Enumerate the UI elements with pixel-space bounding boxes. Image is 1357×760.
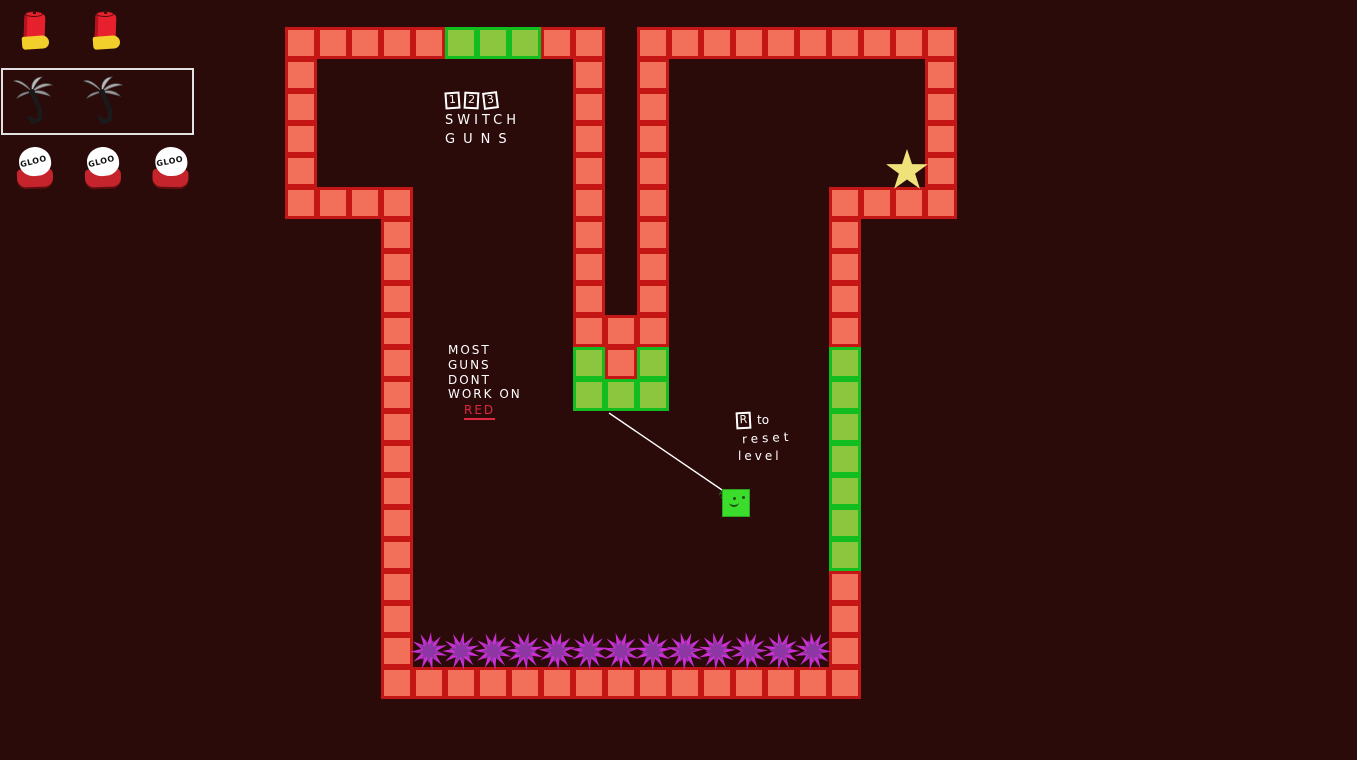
key-r-hint: R xyxy=(736,412,752,430)
red-tile xyxy=(573,91,605,123)
red-tile xyxy=(829,571,861,603)
red-tile xyxy=(733,27,765,59)
grapple-hook-icon xyxy=(82,76,124,128)
red-tile xyxy=(573,283,605,315)
red-tile xyxy=(381,315,413,347)
green-tile xyxy=(829,411,861,443)
red-tile xyxy=(637,27,669,59)
red-tile xyxy=(893,27,925,59)
red-tile xyxy=(669,27,701,59)
tile-layer xyxy=(0,0,1357,760)
red-tile xyxy=(349,27,381,59)
red-tile xyxy=(637,219,669,251)
key-1-hint: 1 xyxy=(444,91,460,109)
red-tile xyxy=(573,219,605,251)
red-tile xyxy=(573,315,605,347)
green-tile xyxy=(829,443,861,475)
reset-word-to: to xyxy=(757,414,769,428)
red-tile xyxy=(381,539,413,571)
red-tile xyxy=(573,123,605,155)
red-tile xyxy=(381,507,413,539)
red-tile xyxy=(925,187,957,219)
red-tile xyxy=(829,667,861,699)
green-tile xyxy=(605,379,637,411)
gloo-blob-icon: GLOO xyxy=(151,146,192,189)
red-tile xyxy=(829,283,861,315)
most-guns-line4: WORK ON xyxy=(448,388,522,402)
red-tile xyxy=(637,91,669,123)
green-tile xyxy=(637,379,669,411)
gloo-blob-icon: GLOO xyxy=(84,147,123,188)
red-tile xyxy=(381,603,413,635)
red-tile xyxy=(605,315,637,347)
red-tile xyxy=(605,667,637,699)
red-tile xyxy=(381,667,413,699)
red-tile xyxy=(573,187,605,219)
green-tile xyxy=(477,27,509,59)
red-tile xyxy=(829,27,861,59)
gloo-blob-icon: GLOO xyxy=(16,147,55,188)
red-tile xyxy=(765,667,797,699)
red-tile xyxy=(861,187,893,219)
red-tile xyxy=(381,27,413,59)
shotgun-shell-icon xyxy=(22,11,49,49)
red-tile xyxy=(829,219,861,251)
red-tile xyxy=(381,475,413,507)
red-tile xyxy=(509,667,541,699)
red-tile xyxy=(733,667,765,699)
green-tile xyxy=(829,347,861,379)
red-tile xyxy=(701,27,733,59)
red-tile xyxy=(893,187,925,219)
grapple-hook-icon xyxy=(12,76,54,128)
red-tile xyxy=(637,315,669,347)
red-tile xyxy=(285,91,317,123)
green-tile xyxy=(829,475,861,507)
red-tile xyxy=(381,347,413,379)
switch-guns-line2: GUNS xyxy=(445,133,520,148)
red-tile xyxy=(797,667,829,699)
red-tile xyxy=(381,187,413,219)
red-tile xyxy=(573,59,605,91)
red-tile xyxy=(829,187,861,219)
shotgun-shell-icon xyxy=(93,11,120,49)
most-guns-line2: GUNS xyxy=(448,359,522,373)
green-tile xyxy=(829,507,861,539)
red-tile xyxy=(381,379,413,411)
green-tile xyxy=(829,539,861,571)
ammo-gloo-blobs: GLOO GLOO GLOO xyxy=(16,147,191,188)
red-tile xyxy=(413,667,445,699)
green-tile xyxy=(573,347,605,379)
game-viewport[interactable]: 1 2 3 SWITCH GUNS MOST GUNS DONT WORK ON… xyxy=(0,0,1357,760)
reset-word-level: level xyxy=(738,450,792,464)
ammo-grapple-hooks xyxy=(12,76,124,128)
key-2-hint: 2 xyxy=(464,92,480,110)
red-tile xyxy=(925,155,957,187)
most-guns-line1: MOST xyxy=(448,344,522,358)
switch-guns-line1: SWITCH xyxy=(445,114,520,129)
red-tile xyxy=(285,187,317,219)
red-tile xyxy=(445,667,477,699)
red-tile xyxy=(381,219,413,251)
red-tile xyxy=(605,347,637,379)
red-tile xyxy=(285,27,317,59)
red-tile xyxy=(317,27,349,59)
red-tile xyxy=(637,155,669,187)
red-tile xyxy=(925,123,957,155)
red-tile xyxy=(637,59,669,91)
player-eye-icon xyxy=(742,496,745,499)
red-tile xyxy=(541,667,573,699)
most-guns-line3: DONT xyxy=(448,374,522,388)
red-tile xyxy=(317,187,349,219)
red-tile xyxy=(349,187,381,219)
key-3-hint: 3 xyxy=(482,91,499,110)
red-tile xyxy=(573,155,605,187)
red-tile xyxy=(381,571,413,603)
red-tile xyxy=(573,27,605,59)
green-tile xyxy=(637,347,669,379)
red-tile xyxy=(381,411,413,443)
red-tile xyxy=(477,667,509,699)
player-smile-icon xyxy=(729,498,739,507)
red-tile xyxy=(637,283,669,315)
red-tile xyxy=(829,315,861,347)
ammo-shotgun-shells xyxy=(22,11,120,49)
red-tile xyxy=(925,91,957,123)
most-guns-hint: MOST GUNS DONT WORK ON RED xyxy=(448,344,522,421)
red-tile xyxy=(381,635,413,667)
red-tile xyxy=(829,635,861,667)
red-tile xyxy=(381,251,413,283)
switch-guns-hint: 1 2 3 SWITCH GUNS xyxy=(445,92,520,148)
red-tile xyxy=(413,27,445,59)
reset-level-hint: R to reset level xyxy=(736,412,792,464)
red-highlight-word: RED xyxy=(464,404,495,420)
red-tile xyxy=(669,667,701,699)
green-tile xyxy=(509,27,541,59)
player-character xyxy=(722,489,750,517)
red-tile xyxy=(285,123,317,155)
red-tile xyxy=(381,443,413,475)
red-tile xyxy=(285,155,317,187)
red-tile xyxy=(765,27,797,59)
red-tile xyxy=(829,251,861,283)
selected-weapon-box xyxy=(1,68,194,135)
red-tile xyxy=(829,603,861,635)
red-tile xyxy=(637,187,669,219)
red-tile xyxy=(637,251,669,283)
green-tile xyxy=(573,379,605,411)
red-tile xyxy=(381,283,413,315)
green-tile xyxy=(829,379,861,411)
red-tile xyxy=(573,667,605,699)
red-tile xyxy=(637,123,669,155)
red-tile xyxy=(285,59,317,91)
red-tile xyxy=(573,251,605,283)
weapon-key-hints: 1 2 3 xyxy=(445,92,520,109)
red-tile xyxy=(861,27,893,59)
green-tile xyxy=(445,27,477,59)
red-tile xyxy=(925,59,957,91)
reset-word-reset: reset xyxy=(742,431,793,447)
red-tile xyxy=(925,27,957,59)
red-tile xyxy=(541,27,573,59)
red-tile xyxy=(797,27,829,59)
red-tile xyxy=(637,667,669,699)
red-tile xyxy=(701,667,733,699)
